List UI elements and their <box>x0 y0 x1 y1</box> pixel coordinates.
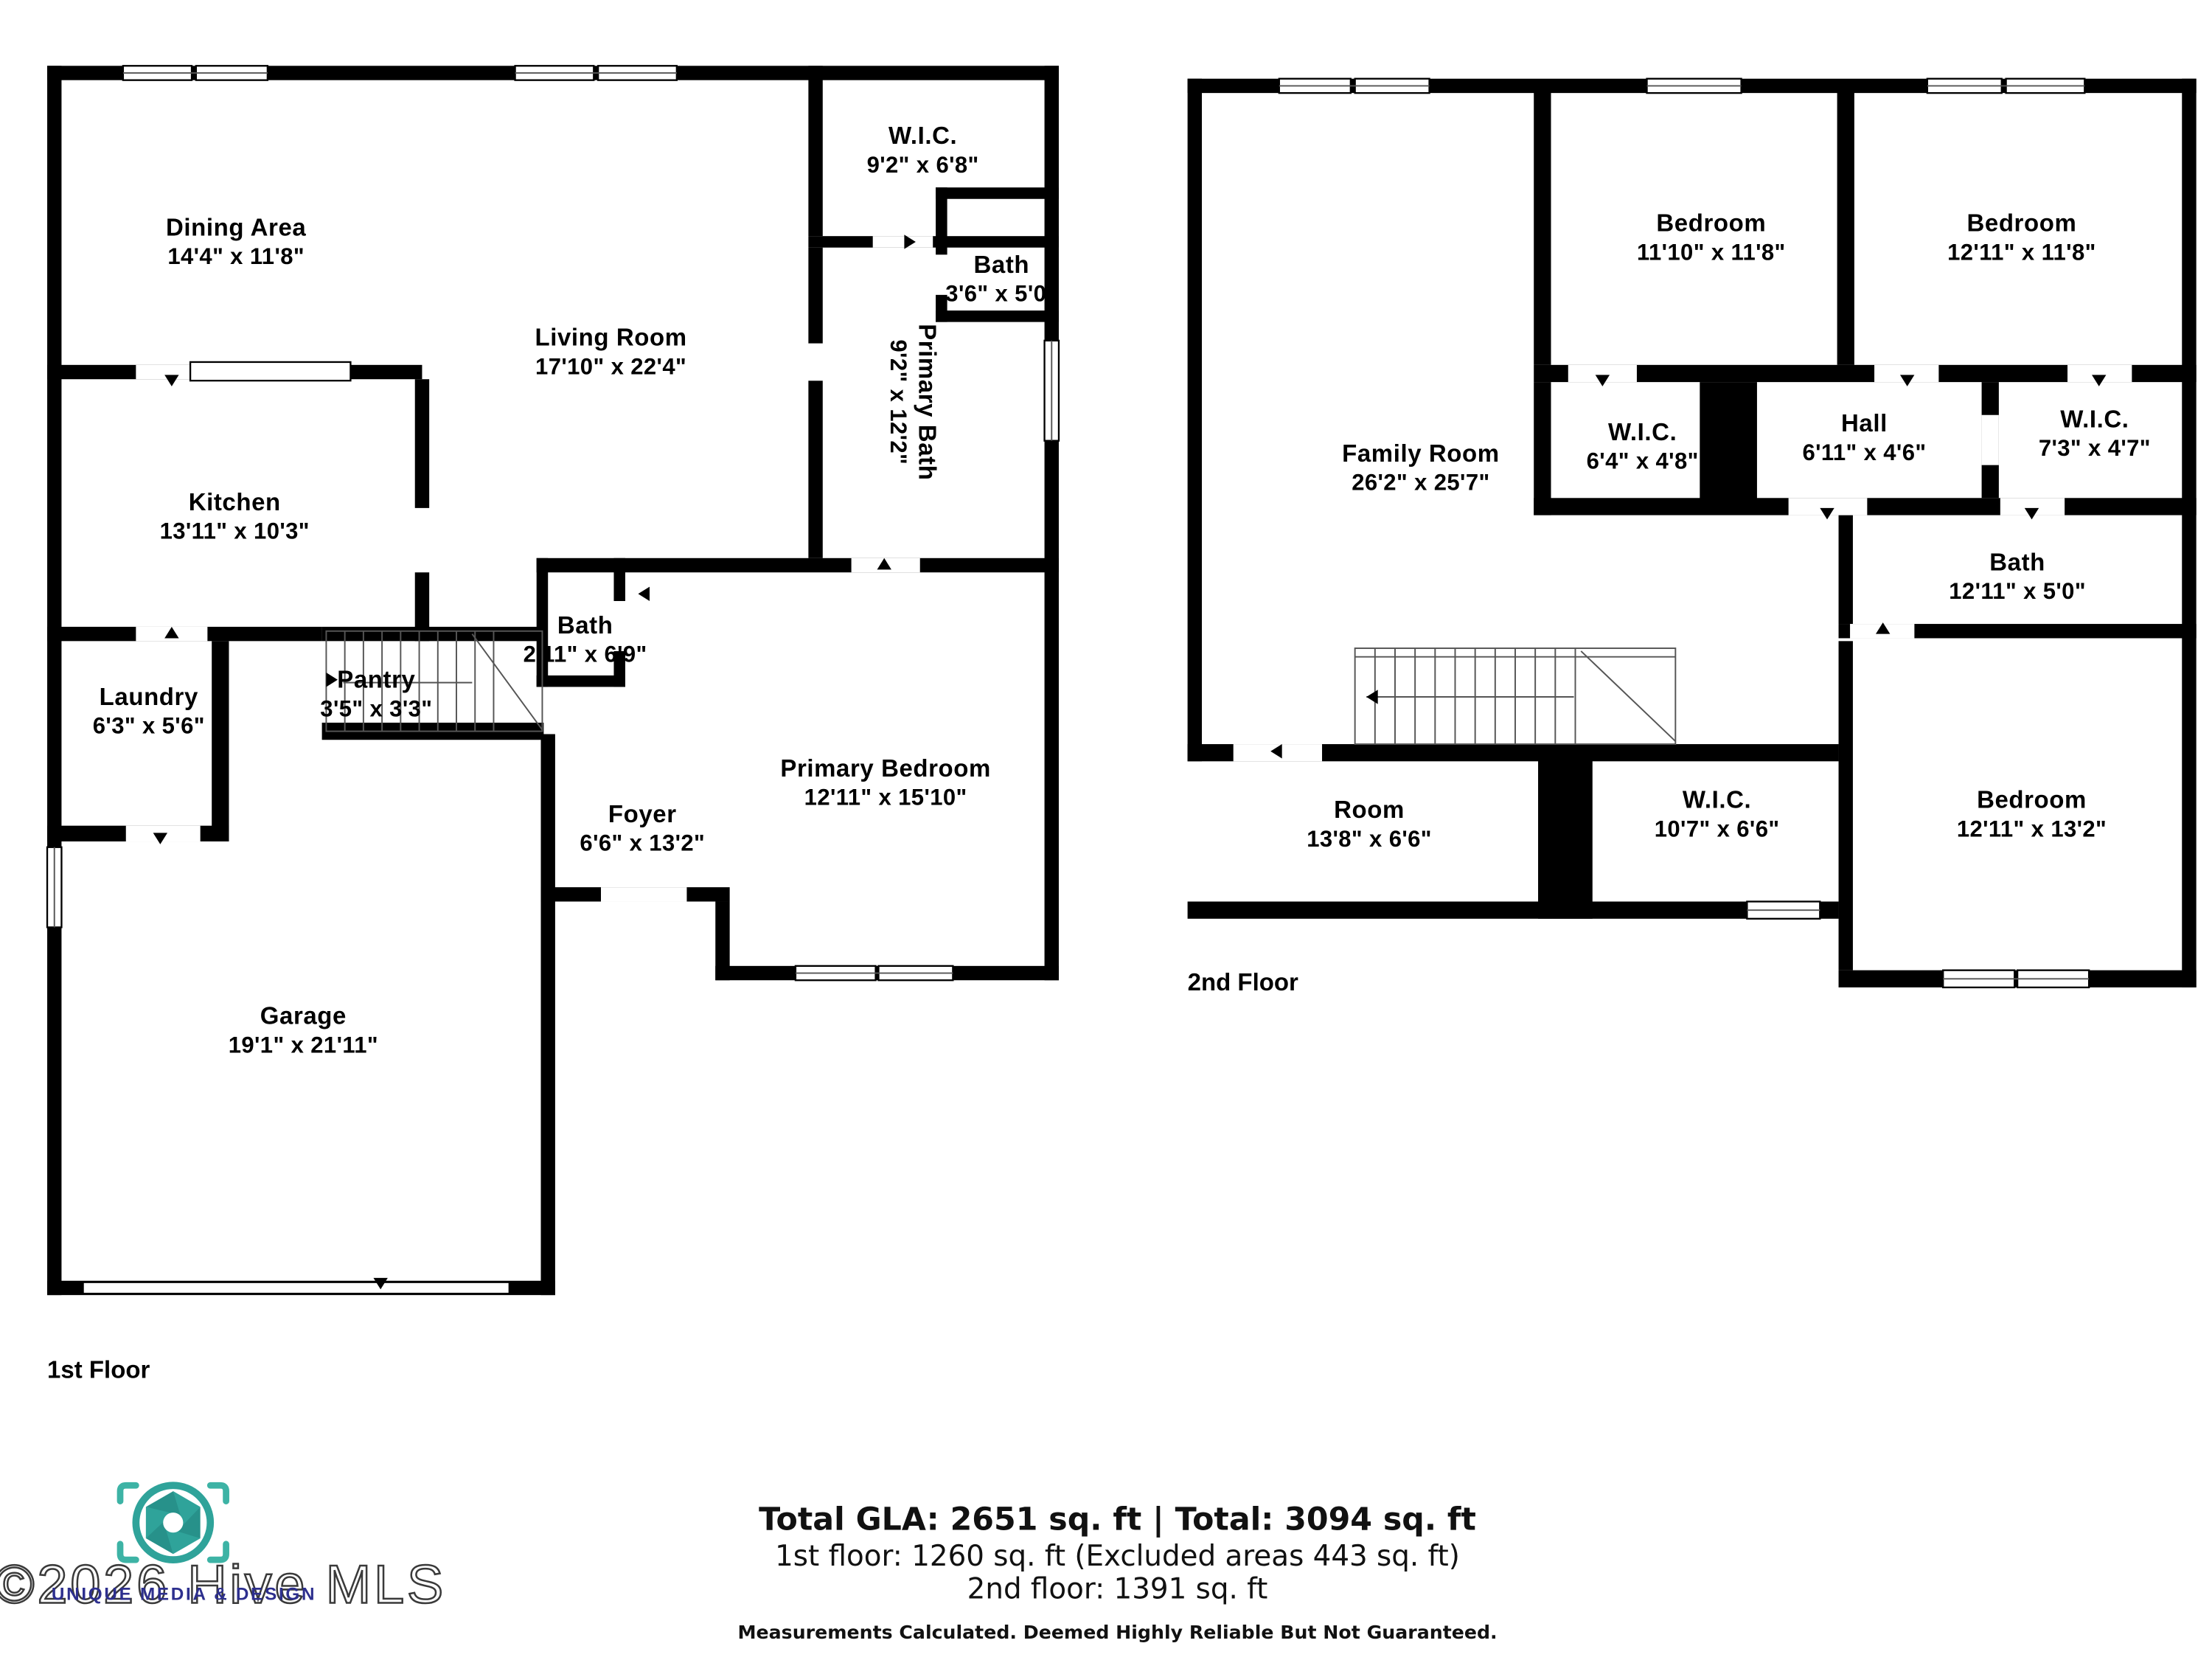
camera-aperture-icon <box>0 1459 515 1645</box>
room-label-bath-2: Bath 12'11" x 5'0" <box>1949 547 2086 608</box>
company-name: UNIQUE MEDIA & DESIGN <box>52 1584 316 1604</box>
room-label-bedroom-2: Bedroom 12'11" x 11'8" <box>1947 208 2096 269</box>
room-label-wic-4: W.I.C. 10'7" x 6'6" <box>1655 785 1780 846</box>
room-label-primary-bath: Primary Bath 9'2" x 12'2" <box>880 324 942 480</box>
room-label-laundry: Laundry 6'3" x 5'6" <box>93 682 205 743</box>
floor-plan-page: Dining Area 14'4" x 11'8" Living Room 17… <box>0 0 2212 1660</box>
room-label-wic-2: W.I.C. 6'4" x 4'8" <box>1587 417 1699 479</box>
room-label-garage: Garage 19'1" x 21'11" <box>229 1001 378 1062</box>
brand-logo-block <box>0 1459 515 1645</box>
room-label-hall: Hall 6'11" x 4'6" <box>1802 409 1926 470</box>
floor1-area-line: 1st floor: 1260 sq. ft (Excluded areas 4… <box>737 1540 1497 1573</box>
room-label-bath-small: Bath 3'6" x 5'0" <box>945 250 1057 311</box>
room-label-family-room: Family Room 26'2" x 25'7" <box>1342 439 1500 500</box>
room-label-bedroom-1: Bedroom 11'10" x 11'8" <box>1637 208 1786 269</box>
room-label-pantry: Pantry 3'5" x 3'3" <box>320 664 432 726</box>
room-label-room: Room 13'8" x 6'6" <box>1307 795 1432 856</box>
total-gla-line: Total GLA: 2651 sq. ft | Total: 3094 sq.… <box>737 1503 1497 1539</box>
room-label-kitchen: Kitchen 13'11" x 10'3" <box>160 487 310 549</box>
area-summary: Total GLA: 2651 sq. ft | Total: 3094 sq.… <box>737 1503 1497 1645</box>
first-floor-tag: 1st Floor <box>47 1357 150 1386</box>
room-label-wic-1: W.I.C. 9'2" x 6'8" <box>867 121 979 182</box>
floor-plan-drawing <box>0 0 2212 1660</box>
second-floor-stairs <box>1355 648 1676 744</box>
room-label-primary-bedroom: Primary Bedroom 12'11" x 15'10" <box>780 754 991 815</box>
second-floor-tag: 2nd Floor <box>1188 969 1298 998</box>
room-label-bedroom-3: Bedroom 12'11" x 13'2" <box>1957 785 2107 846</box>
room-label-living-room: Living Room 17'10" x 22'4" <box>535 323 687 384</box>
disclaimer-line: Measurements Calculated. Deemed Highly R… <box>737 1623 1497 1645</box>
room-label-bath-hall: Bath 2'11" x 6'9" <box>524 611 647 672</box>
room-label-wic-3: W.I.C. 7'3" x 4'7" <box>2039 404 2151 465</box>
room-label-foyer: Foyer 6'6" x 13'2" <box>580 799 705 861</box>
floor2-area-line: 2nd floor: 1391 sq. ft <box>737 1573 1497 1606</box>
room-label-dining-area: Dining Area 14'4" x 11'8" <box>166 212 306 274</box>
